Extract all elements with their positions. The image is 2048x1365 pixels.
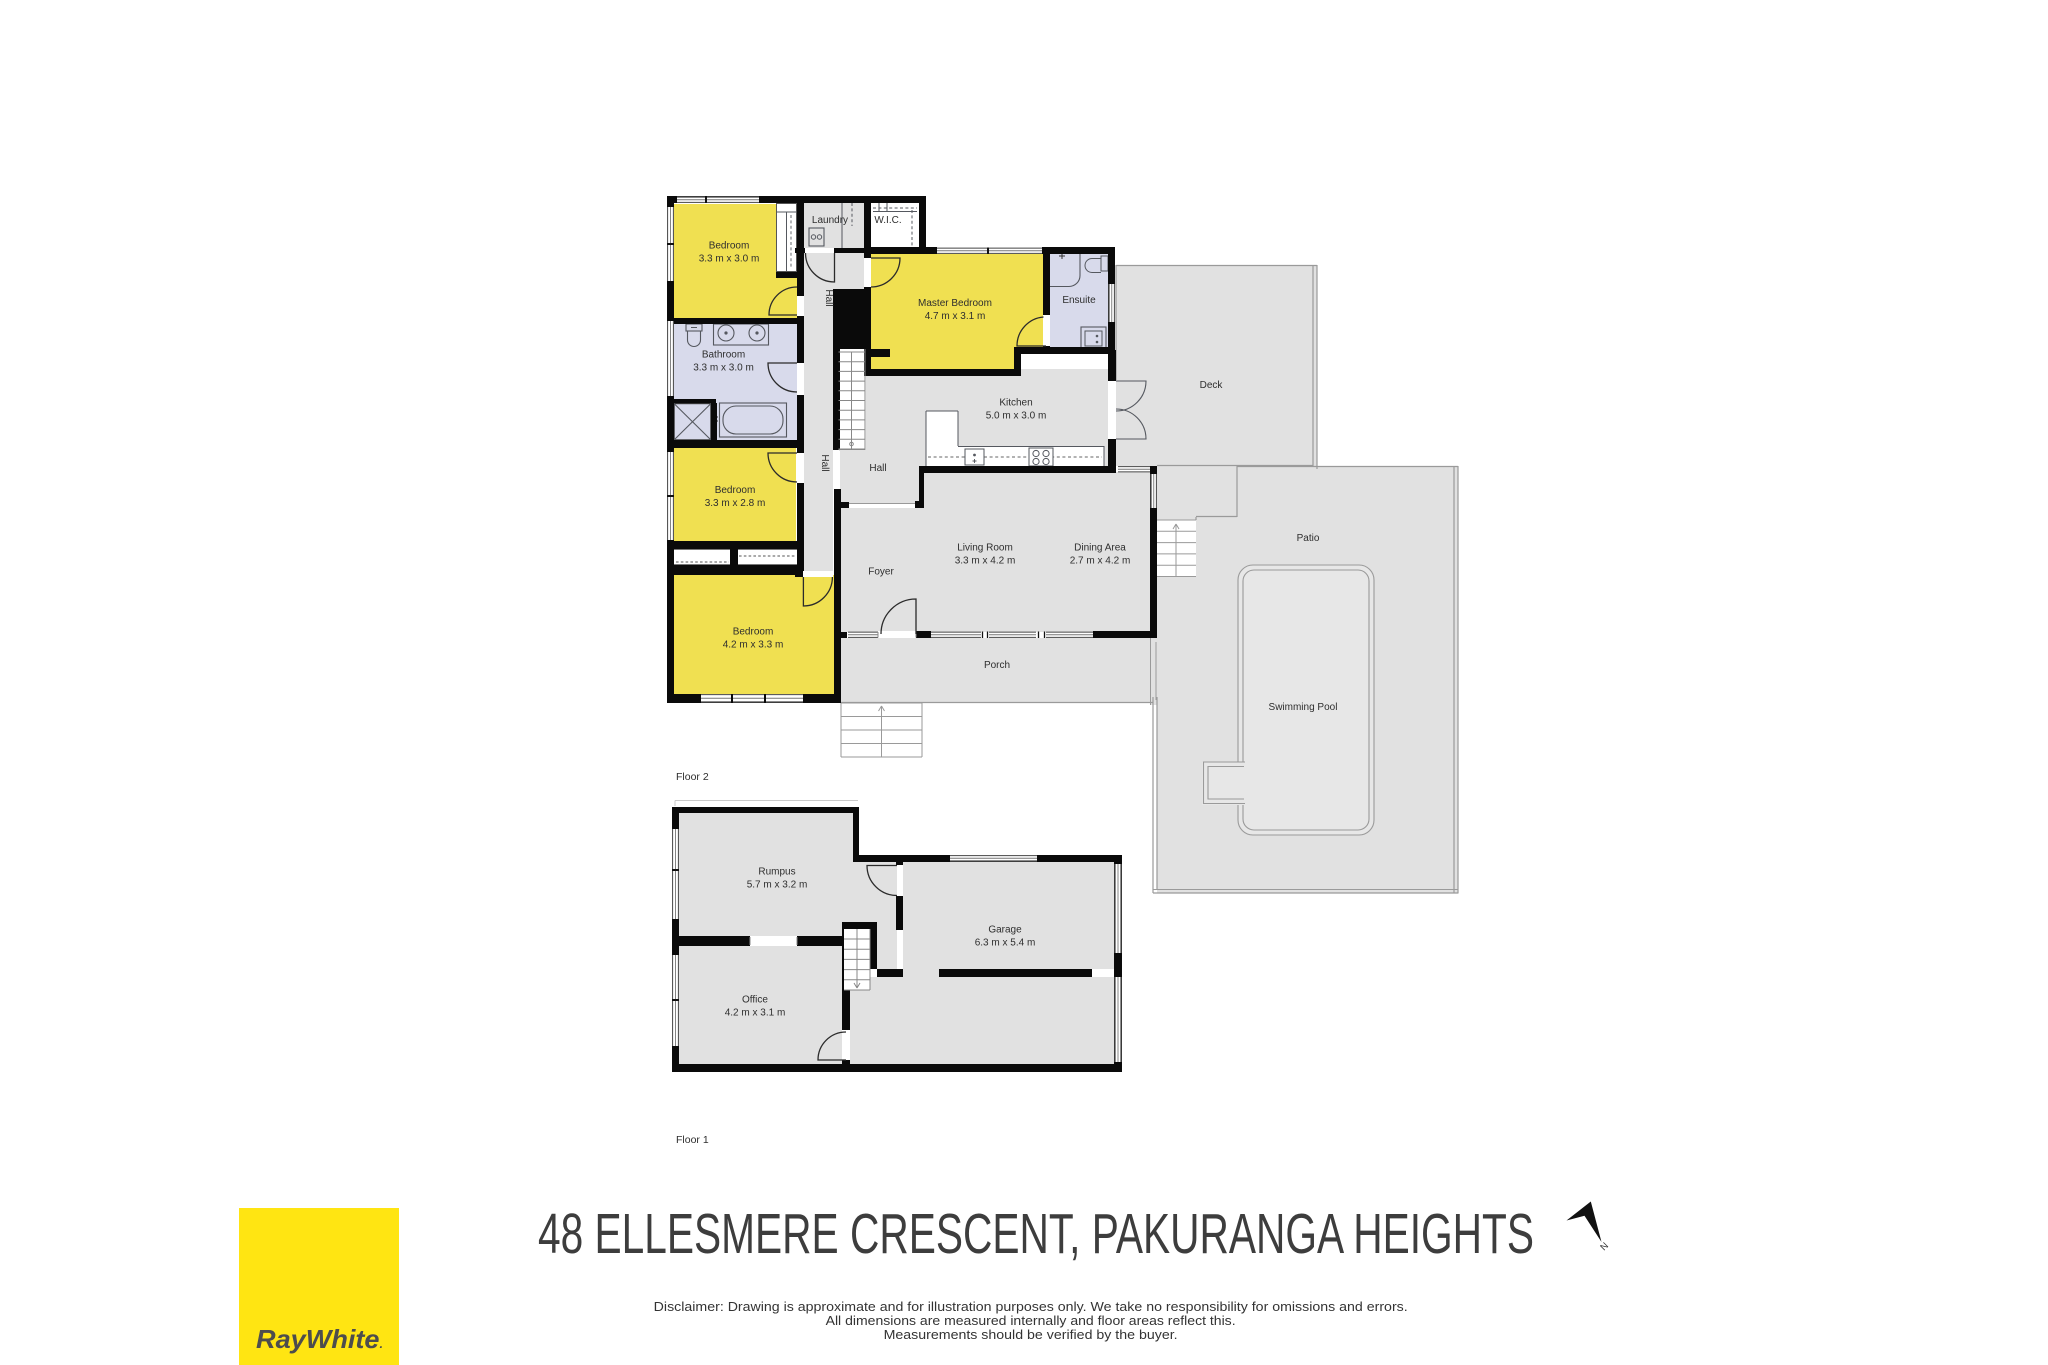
svg-text:Foyer: Foyer [868,567,894,578]
svg-text:3.3 m x 3.0 m: 3.3 m x 3.0 m [699,254,760,265]
svg-text:Bedroom: Bedroom [709,241,750,252]
svg-text:Bedroom: Bedroom [715,485,756,496]
svg-text:Office: Office [742,995,768,1006]
svg-text:Bedroom: Bedroom [733,627,774,638]
svg-text:Floor 2: Floor 2 [676,771,709,783]
svg-text:2.7 m x 4.2 m: 2.7 m x 4.2 m [1070,556,1131,567]
svg-text:5.0 m x 3.0 m: 5.0 m x 3.0 m [986,411,1047,422]
svg-text:4.2 m x 3.3 m: 4.2 m x 3.3 m [723,640,784,651]
svg-text:Floor 1: Floor 1 [676,1134,709,1146]
svg-text:Dining Area: Dining Area [1074,543,1126,554]
svg-text:3.3 m x 2.8 m: 3.3 m x 2.8 m [705,498,766,509]
svg-text:Porch: Porch [984,660,1010,671]
svg-text:Master Bedroom: Master Bedroom [918,298,992,309]
svg-text:6.3 m x 5.4 m: 6.3 m x 5.4 m [975,938,1036,949]
svg-text:Patio: Patio [1297,533,1320,544]
svg-text:48 ELLESMERE CRESCENT, PAKURAN: 48 ELLESMERE CRESCENT, PAKURANGA HEIGHTS [538,1202,1534,1266]
svg-text:Deck: Deck [1200,380,1224,391]
svg-text:Garage: Garage [988,925,1022,936]
svg-text:Ensuite: Ensuite [1062,295,1096,306]
svg-text:4.7 m x 3.1 m: 4.7 m x 3.1 m [925,311,986,322]
svg-text:Hall: Hall [823,289,834,306]
svg-text:5.7 m x 3.2 m: 5.7 m x 3.2 m [747,880,808,891]
svg-text:Kitchen: Kitchen [999,398,1032,409]
svg-text:4.2 m x 3.1 m: 4.2 m x 3.1 m [725,1008,786,1019]
svg-text:3.3 m x 3.0 m: 3.3 m x 3.0 m [693,363,754,374]
svg-text:RayWhite.: RayWhite. [256,1324,383,1354]
svg-text:Disclaimer: Drawing is approxi: Disclaimer: Drawing is approximate and f… [654,1299,1408,1314]
svg-text:Measurements should be verifie: Measurements should be verified by the b… [884,1327,1178,1342]
svg-text:Hall: Hall [819,454,830,471]
svg-text:Hall: Hall [869,463,886,474]
svg-text:Laundry: Laundry [812,215,848,226]
svg-text:Living Room: Living Room [957,543,1013,554]
svg-text:3.3 m x 4.2 m: 3.3 m x 4.2 m [955,556,1016,567]
svg-text:Swimming Pool: Swimming Pool [1269,702,1338,713]
svg-text:Rumpus: Rumpus [758,867,795,878]
svg-text:Bathroom: Bathroom [702,350,745,361]
svg-text:All dimensions are measured in: All dimensions are measured internally a… [826,1313,1236,1328]
svg-text:W.I.C.: W.I.C. [874,215,901,226]
